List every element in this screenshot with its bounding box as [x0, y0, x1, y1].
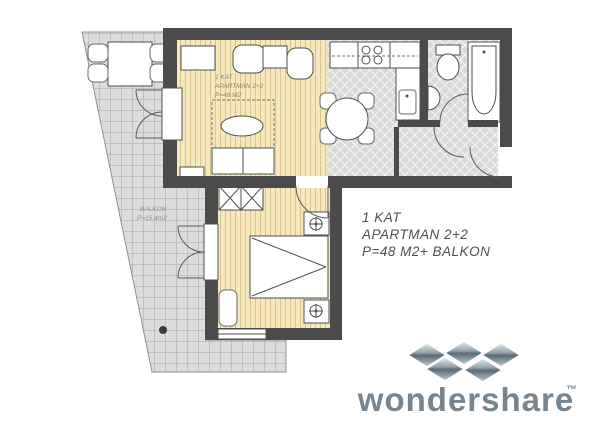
coffee-table	[221, 116, 263, 136]
wall-right-upper	[500, 40, 512, 147]
armchair	[233, 45, 265, 73]
sofa-seat	[181, 46, 215, 70]
kitchen-sink	[399, 90, 416, 114]
wall-bath-bottom-west	[398, 120, 440, 127]
brand-wordmark: wondershare	[357, 381, 574, 418]
wall-bath-bottom-east	[468, 120, 498, 127]
wall-mid-band-east	[328, 176, 512, 188]
caption-line2: APARTMAN 2+2	[361, 227, 468, 242]
kitchen-counter-top	[330, 42, 420, 68]
floor-plan: 1 KAT APARTMAN 2+2 P=48 M2 BALKON P=15.4…	[0, 0, 600, 423]
room-label-line3: P=48 M2	[215, 92, 242, 99]
wall-bedroom-right	[330, 188, 342, 340]
wondershare-watermark: wondershare ™	[357, 341, 577, 418]
room-label-line1: 1 KAT	[215, 74, 234, 81]
balcony-label-name: BALKON	[140, 206, 167, 213]
wall-kitchen-bath	[420, 40, 428, 120]
wall-top	[163, 28, 512, 40]
armchair	[287, 48, 313, 79]
caption-line3: P=48 M2+ BALKON	[362, 244, 490, 259]
floor-plan-page: 1 KAT APARTMAN 2+2 P=48 M2 BALKON P=15.4…	[0, 0, 600, 423]
kitchen-table	[326, 98, 368, 140]
sink-faucet	[406, 95, 409, 98]
bathtub-drain	[483, 51, 486, 54]
wall-hall-thin	[394, 127, 399, 176]
wall-bedroom-left-upper	[205, 188, 218, 224]
balcony-chair	[88, 44, 108, 62]
balcony-drain	[159, 326, 167, 334]
bedroom-bench	[219, 290, 237, 326]
wall-mid-band-west	[163, 176, 296, 188]
bed	[250, 236, 328, 298]
sofa-seat	[263, 46, 287, 68]
balcony-label-area: P=15.4m2	[137, 215, 167, 222]
brand-trademark: ™	[566, 384, 577, 396]
caption-line1: 1 KAT	[362, 210, 402, 225]
bathtub	[468, 42, 500, 122]
toilet-bowl	[437, 54, 459, 80]
bedroom-balcony-door-frame	[204, 224, 218, 280]
balcony-dining-set	[88, 42, 170, 86]
lamp-dot	[315, 310, 318, 313]
room-label-line2: APARTMAN 2+2	[214, 83, 264, 90]
living-balcony-door-frame	[162, 88, 182, 140]
lamp-dot	[315, 223, 318, 226]
wall-left-lower	[163, 140, 177, 176]
wall-left-upper	[163, 40, 177, 88]
balcony-table	[108, 42, 152, 86]
balcony-chair	[88, 64, 108, 82]
